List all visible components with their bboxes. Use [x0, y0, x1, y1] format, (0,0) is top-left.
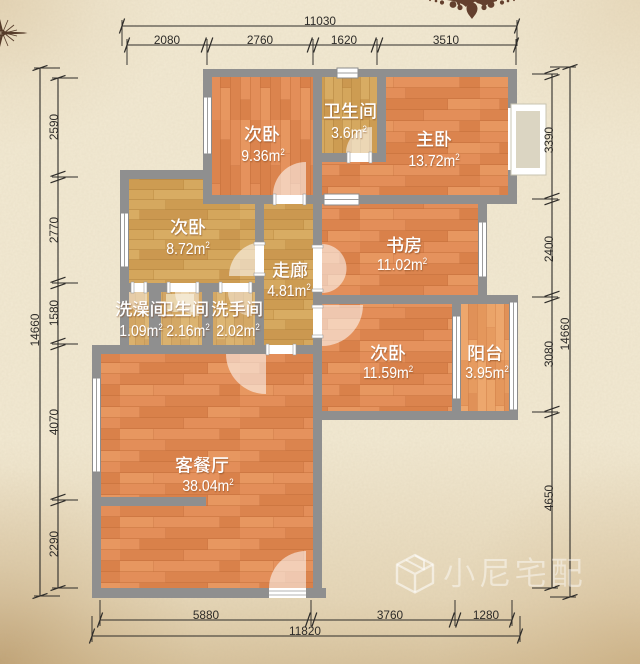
svg-text:1280: 1280 [473, 608, 500, 622]
svg-text:2.02m2: 2.02m2 [216, 322, 260, 341]
svg-text:2400: 2400 [542, 235, 556, 262]
svg-text:11820: 11820 [289, 624, 321, 638]
svg-text:2590: 2590 [47, 113, 61, 140]
svg-text:1.09m2: 1.09m2 [119, 322, 163, 341]
svg-text:2.16m2: 2.16m2 [166, 322, 210, 341]
svg-text:4070: 4070 [47, 408, 61, 435]
svg-text:9.36m2: 9.36m2 [241, 147, 285, 166]
svg-text:3760: 3760 [377, 608, 404, 622]
svg-text:3.6m2: 3.6m2 [331, 124, 367, 143]
svg-text:13.72m2: 13.72m2 [408, 152, 460, 171]
svg-text:3080: 3080 [542, 340, 556, 367]
svg-text:3390: 3390 [542, 126, 556, 153]
svg-text:8.72m2: 8.72m2 [166, 240, 210, 259]
svg-text:4650: 4650 [542, 484, 556, 511]
svg-text:2770: 2770 [47, 216, 61, 243]
svg-text:38.04m2: 38.04m2 [182, 477, 234, 496]
svg-text:3510: 3510 [433, 33, 460, 47]
svg-text:14660: 14660 [558, 317, 572, 350]
svg-text:3.95m2: 3.95m2 [465, 364, 509, 383]
svg-text:14660: 14660 [28, 313, 42, 346]
svg-text:11030: 11030 [304, 14, 336, 28]
svg-text:4.81m2: 4.81m2 [267, 282, 311, 301]
svg-text:11.59m2: 11.59m2 [363, 364, 414, 383]
svg-text:1620: 1620 [331, 33, 358, 47]
svg-text:1580: 1580 [47, 299, 61, 326]
svg-text:2760: 2760 [247, 33, 274, 47]
svg-text:2080: 2080 [154, 33, 181, 47]
svg-text:11.02m2: 11.02m2 [377, 256, 428, 275]
svg-text:5880: 5880 [193, 608, 220, 622]
svg-text:2290: 2290 [47, 530, 61, 557]
